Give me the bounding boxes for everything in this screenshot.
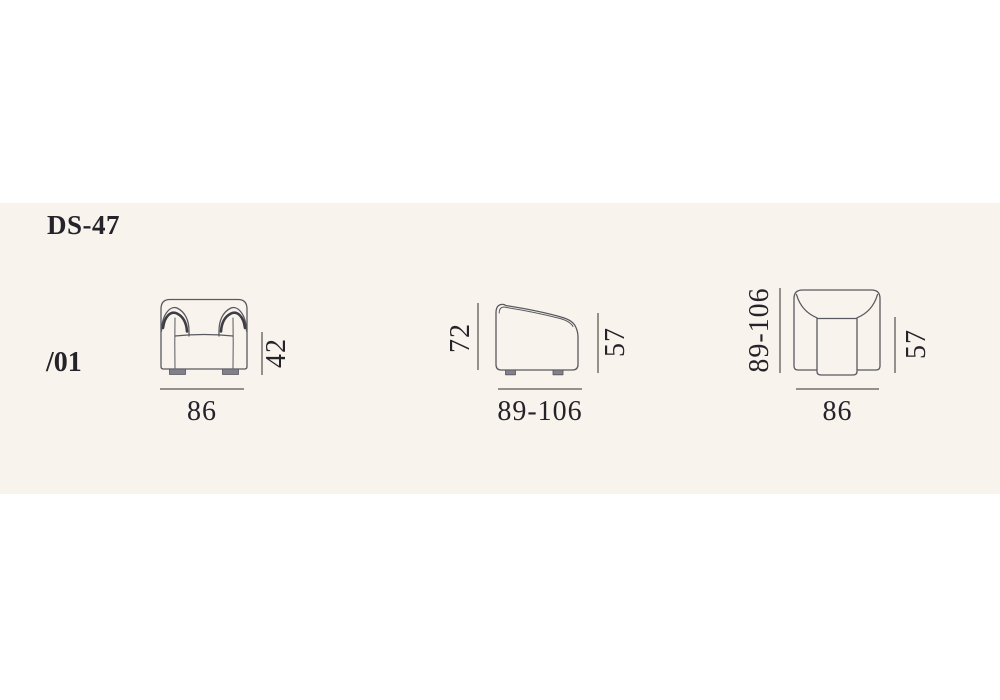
front-view-drawing <box>158 295 250 379</box>
variant-label: /01 <box>46 347 82 379</box>
backrest-wing-left <box>797 295 818 318</box>
dimension-top-height: 57 <box>901 329 933 359</box>
dimension-line-top-height <box>894 317 896 373</box>
dimension-front-width: 86 <box>160 396 244 428</box>
dimension-line-side-height <box>477 303 479 370</box>
dimension-front-height: 42 <box>261 338 293 368</box>
dimension-line-front-width <box>160 388 244 390</box>
seat-top-outline <box>817 319 857 376</box>
backrest-wing-right <box>857 295 878 318</box>
dimension-side-depth: 89-106 <box>490 396 590 428</box>
dimension-line-side-depth <box>498 388 582 390</box>
chair-foot <box>506 370 516 375</box>
dimension-top-depth: 89-106 <box>744 287 776 372</box>
chair-side-outline <box>496 304 578 370</box>
chair-foot <box>170 369 186 375</box>
top-view-drawing <box>791 286 883 378</box>
chair-top-outline <box>794 290 880 370</box>
dimension-side-front-height: 57 <box>600 327 632 357</box>
dimension-line-side-front-height <box>597 313 599 373</box>
dimension-top-width: 86 <box>796 396 879 428</box>
product-model-title: DS-47 <box>47 210 120 241</box>
dimension-side-height: 72 <box>445 323 477 353</box>
dimension-line-top-depth <box>779 288 781 373</box>
chair-foot <box>223 369 239 375</box>
product-dimension-sheet: DS-47 /01 42 86 72 57 89-106 89-106 57 <box>0 0 1000 700</box>
side-view-drawing <box>490 298 590 378</box>
dimension-line-top-width <box>796 388 879 390</box>
chair-foot <box>553 370 563 375</box>
seat-cushion-line <box>175 335 233 337</box>
